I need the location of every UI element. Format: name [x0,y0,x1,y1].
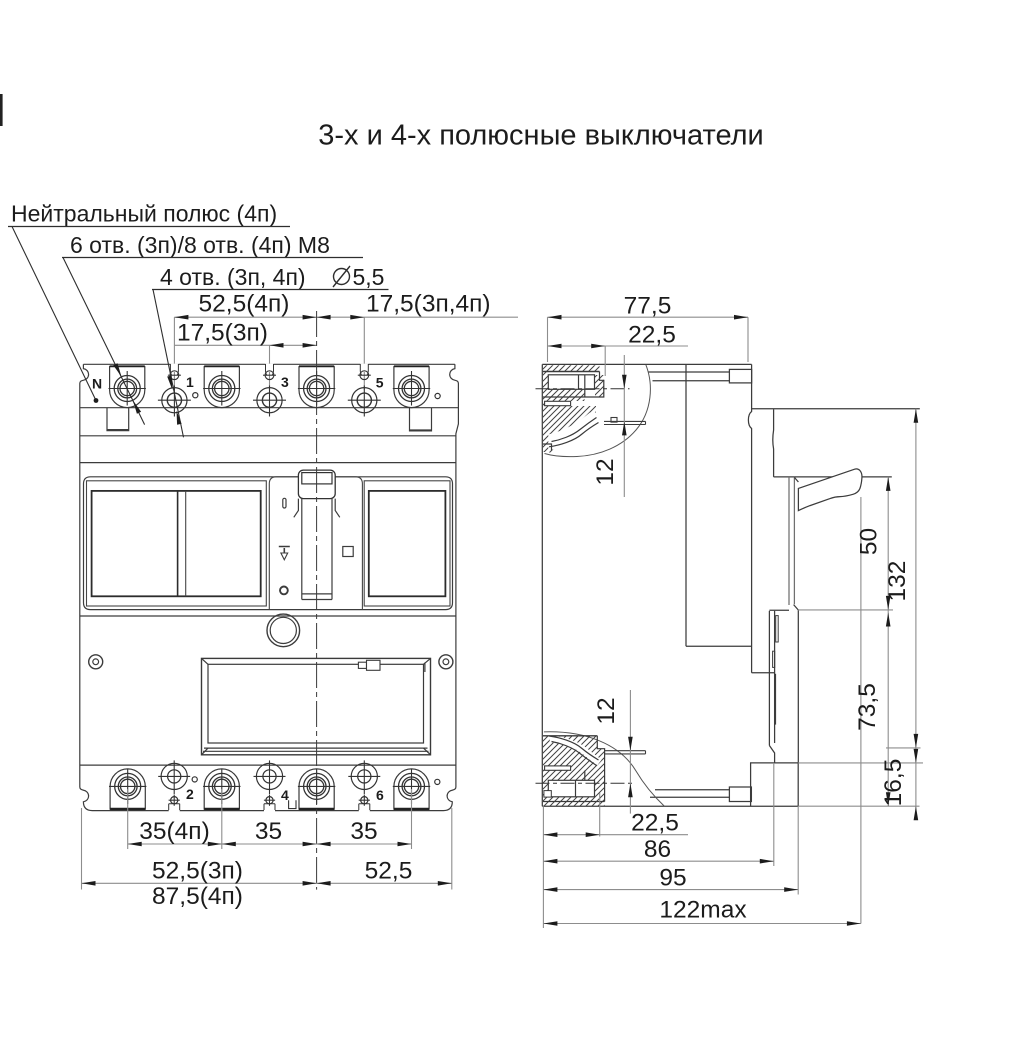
svg-text:12: 12 [592,458,619,485]
svg-text:4 отв. (3п, 4п): 4 отв. (3п, 4п) [160,264,306,290]
svg-text:3-х и 4-х полюсные выключатели: 3-х и 4-х полюсные выключатели [318,120,764,152]
svg-text:132: 132 [884,561,911,602]
svg-text:4: 4 [281,787,289,803]
svg-text:122max: 122max [659,897,746,924]
svg-text:5: 5 [376,375,384,391]
svg-text:73,5: 73,5 [854,683,881,731]
svg-text:22,5: 22,5 [631,810,679,837]
svg-text:17,5(3п): 17,5(3п) [177,320,268,347]
svg-text:52,5(4п): 52,5(4п) [199,291,290,318]
svg-text:12: 12 [593,697,620,724]
svg-text:Нейтральный полюс (4п): Нейтральный полюс (4п) [11,201,277,227]
svg-text:35: 35 [255,818,282,845]
svg-text:95: 95 [659,865,686,892]
svg-text:35(4п): 35(4п) [139,818,209,845]
svg-text:35: 35 [350,818,377,845]
svg-text:22,5: 22,5 [628,321,676,348]
svg-text:1: 1 [186,374,194,390]
svg-text:6: 6 [376,787,384,803]
svg-text:52,5: 52,5 [365,858,413,885]
svg-text:17,5(3п,4п): 17,5(3п,4п) [366,291,491,318]
svg-text:16,5: 16,5 [880,759,907,807]
svg-text:50: 50 [856,528,883,555]
svg-text:52,5(3п): 52,5(3п) [152,858,243,885]
svg-text:86: 86 [644,836,671,863]
svg-text:77,5: 77,5 [624,293,672,320]
svg-text:87,5(4п): 87,5(4п) [152,883,243,910]
svg-text:N: N [92,376,102,392]
svg-text:3: 3 [281,374,289,390]
svg-text:2: 2 [186,786,194,802]
svg-text:5,5: 5,5 [353,264,385,290]
svg-text:6 отв. (3п)/8 отв. (4п) М8: 6 отв. (3п)/8 отв. (4п) М8 [70,232,330,258]
